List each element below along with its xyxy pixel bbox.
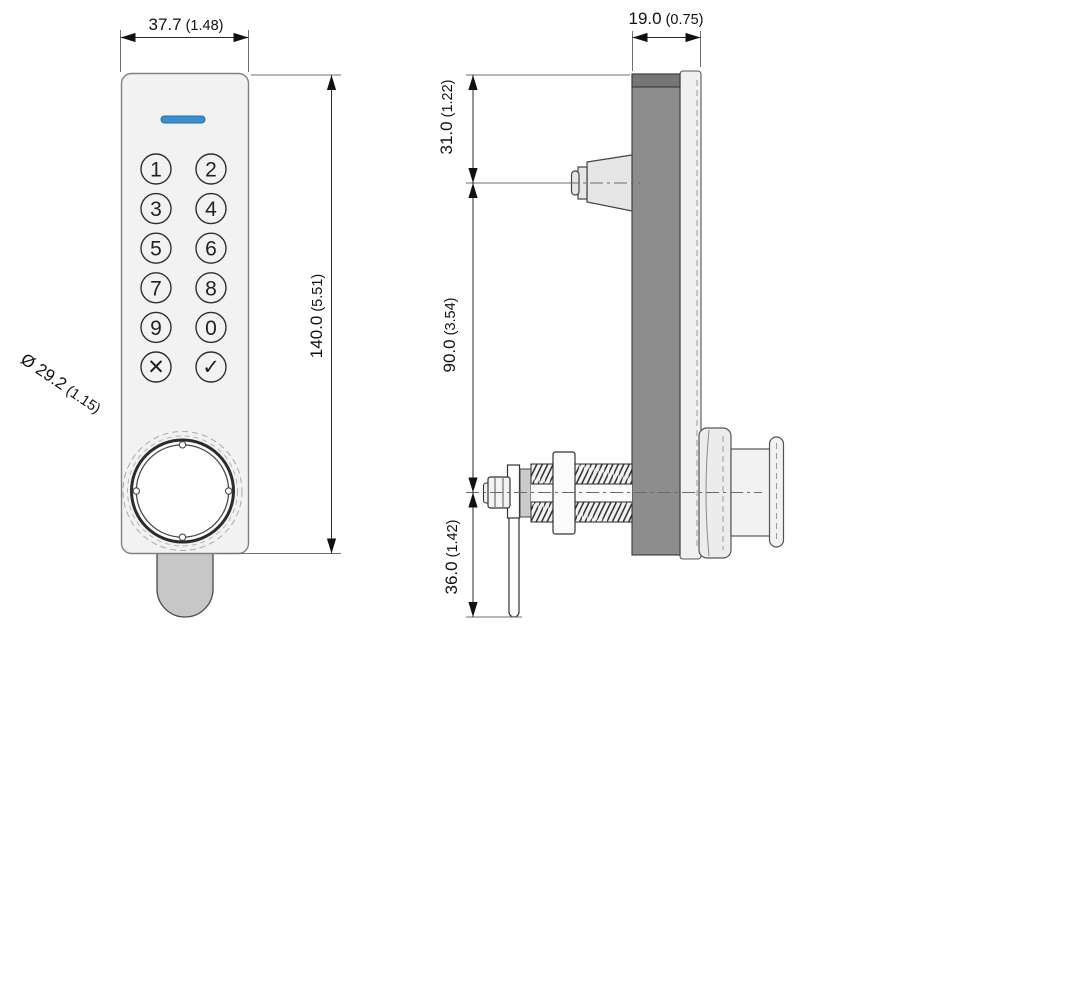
svg-text:2: 2 [205,159,217,182]
svg-text:8: 8 [205,277,217,300]
svg-text:6: 6 [205,238,217,261]
svg-text:9: 9 [150,317,162,340]
svg-text:19.0(0.75): 19.0(0.75) [629,9,704,28]
svg-text:1: 1 [150,159,162,182]
diameter-dimension: Ø 29.2(1.15) [17,350,105,418]
side-body [632,74,680,555]
svg-text:Ø 29.2(1.15): Ø 29.2(1.15) [17,350,105,418]
svg-text:37.7(1.48): 37.7(1.48) [149,15,224,34]
svg-text:90.0(3.54): 90.0(3.54) [440,298,459,373]
lock-ring-inner [136,445,228,537]
svg-text:✕: ✕ [147,356,165,379]
front-view: 1 2 3 4 5 6 7 8 9 0 ✕ ✓ [17,15,341,617]
technical-drawing-canvas: 1 2 3 4 5 6 7 8 9 0 ✕ ✓ [0,0,1078,983]
svg-text:0: 0 [205,317,217,340]
side-view: 19.0(0.75) 31.0(1.22) 90.0(3.54) 36.0(1.… [437,9,784,617]
side-depth-dimension: 19.0(0.75) [629,9,704,71]
side-body-top-band [632,74,680,87]
side-body-length-dimension: 90.0(3.54) [440,183,478,493]
front-width-dimension: 37.7(1.48) [121,15,249,72]
svg-text:3: 3 [150,198,162,221]
svg-text:5: 5 [150,238,162,261]
svg-text:31.0(1.22): 31.0(1.22) [437,80,456,155]
svg-text:7: 7 [150,277,162,300]
svg-text:✓: ✓ [202,356,220,379]
svg-text:36.0(1.42): 36.0(1.42) [442,520,461,595]
drawing-svg: 1 2 3 4 5 6 7 8 9 0 ✕ ✓ [0,0,1078,983]
svg-text:4: 4 [205,198,217,221]
svg-text:140.0(5.51): 140.0(5.51) [307,274,326,358]
panel-edge-strip [680,71,701,559]
status-indicator-bar [161,116,205,123]
